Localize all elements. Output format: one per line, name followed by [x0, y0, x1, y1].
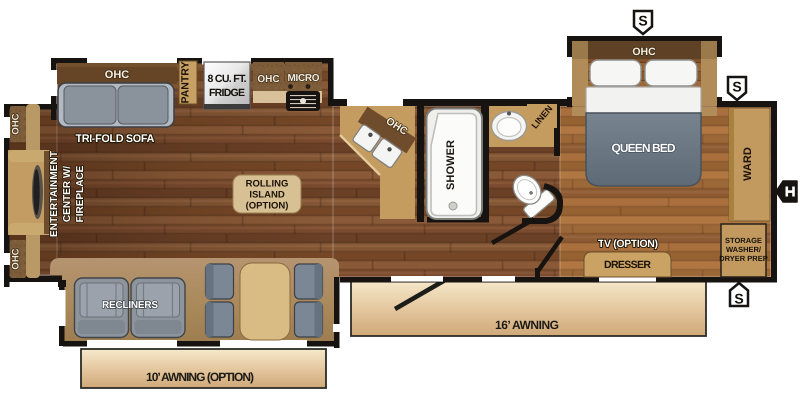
- svg-text:PANTRY: PANTRY: [180, 62, 192, 104]
- svg-text:TV (OPTION): TV (OPTION): [598, 238, 658, 250]
- svg-text:CENTER W/: CENTER W/: [62, 166, 73, 222]
- svg-text:S: S: [734, 291, 743, 307]
- svg-text:OHC: OHC: [11, 248, 22, 269]
- svg-text:S: S: [732, 79, 741, 95]
- svg-text:TRI-FOLD SOFA: TRI-FOLD SOFA: [76, 133, 155, 145]
- svg-text:OHC: OHC: [632, 46, 656, 58]
- svg-text:16’ AWNING: 16’ AWNING: [495, 318, 559, 332]
- svg-text:8 CU. FT.: 8 CU. FT.: [208, 73, 247, 85]
- svg-text:FRIDGE: FRIDGE: [209, 87, 245, 99]
- svg-text:(OPTION): (OPTION): [246, 201, 289, 212]
- svg-text:OHC: OHC: [11, 113, 22, 134]
- svg-text:S: S: [638, 13, 647, 29]
- svg-text:SHOWER: SHOWER: [445, 140, 457, 190]
- svg-text:RECLINERS: RECLINERS: [102, 300, 158, 311]
- svg-text:OHC: OHC: [257, 74, 279, 85]
- svg-text:FIREPLACE: FIREPLACE: [75, 165, 86, 222]
- svg-text:QUEEN BED: QUEEN BED: [612, 141, 676, 155]
- svg-text:DRESSER: DRESSER: [604, 259, 651, 271]
- svg-text:WASHER/: WASHER/: [726, 245, 762, 254]
- svg-text:WARD: WARD: [742, 147, 754, 181]
- svg-text:10’ AWNING (OPTION): 10’ AWNING (OPTION): [146, 370, 254, 384]
- svg-text:DRYER PREP: DRYER PREP: [719, 254, 767, 263]
- svg-text:MICRO: MICRO: [288, 73, 320, 84]
- svg-text:OHC: OHC: [105, 69, 130, 81]
- svg-text:STORAGE: STORAGE: [725, 236, 762, 245]
- svg-text:ISLAND: ISLAND: [249, 190, 285, 201]
- svg-text:ROLLING: ROLLING: [246, 179, 289, 190]
- svg-text:ENTERTAINMENT: ENTERTAINMENT: [49, 151, 60, 237]
